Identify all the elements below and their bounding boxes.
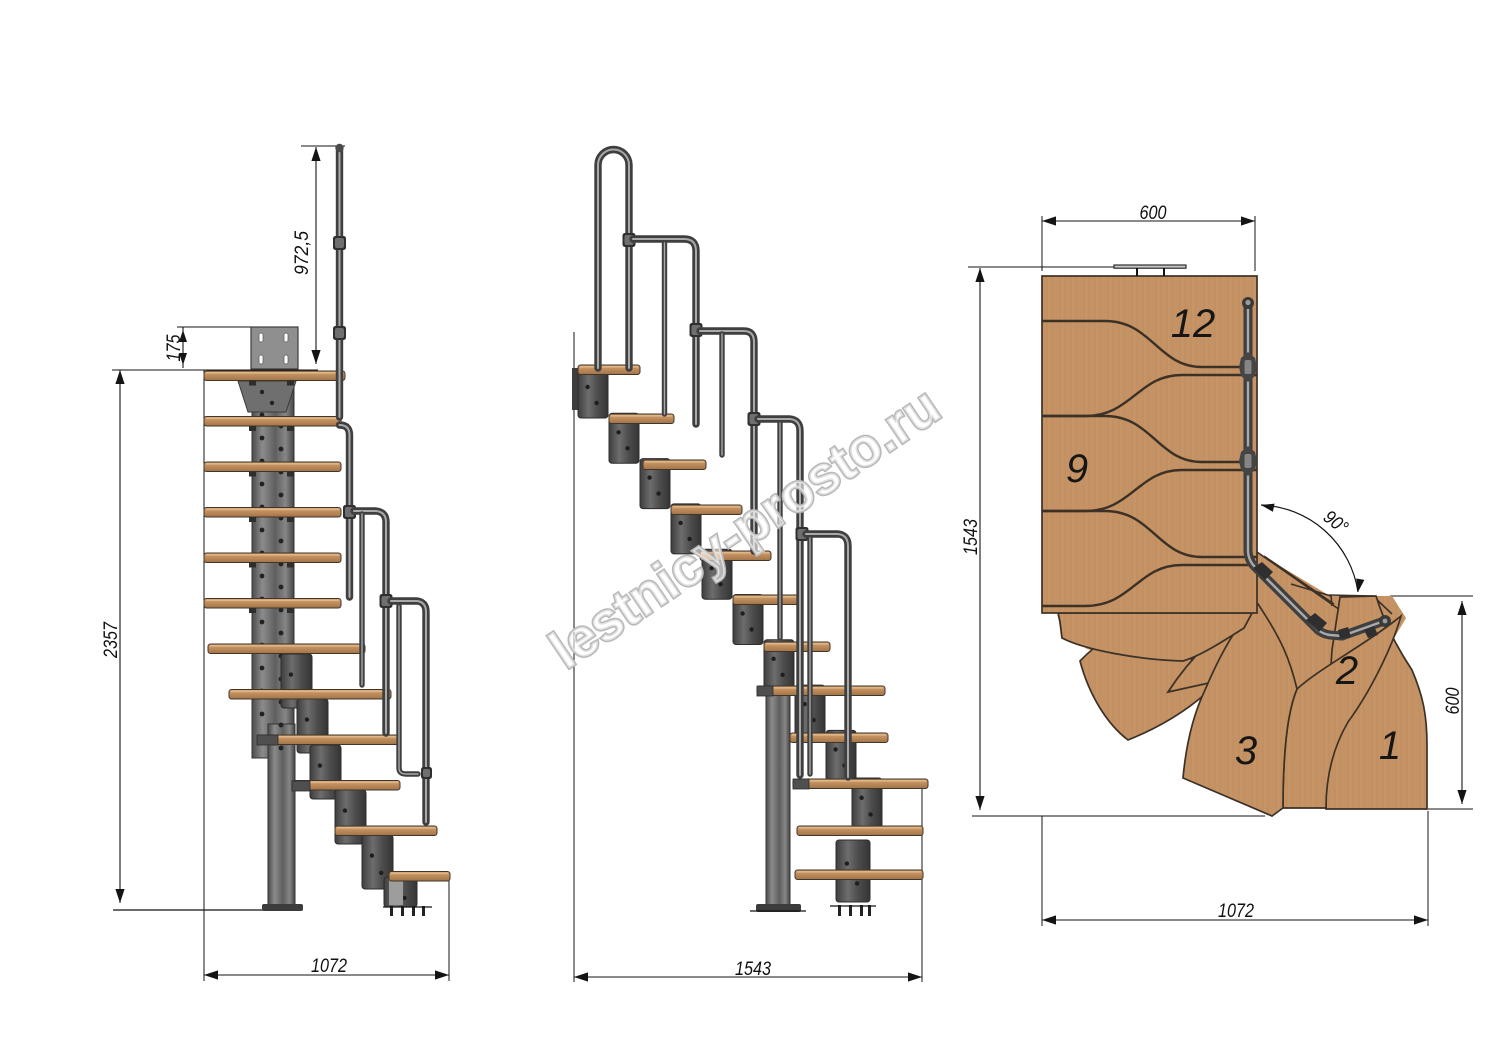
- svg-text:3: 3: [1235, 729, 1257, 773]
- svg-text:12: 12: [1171, 302, 1216, 346]
- svg-text:9: 9: [1066, 447, 1088, 491]
- svg-text:1543: 1543: [735, 959, 771, 980]
- svg-text:972,5: 972,5: [292, 231, 313, 275]
- svg-text:1072: 1072: [311, 956, 347, 977]
- svg-text:1543: 1543: [961, 519, 982, 555]
- svg-text:2: 2: [1335, 649, 1358, 693]
- svg-text:2357: 2357: [101, 621, 122, 659]
- svg-text:600: 600: [1443, 687, 1464, 714]
- svg-text:600: 600: [1140, 203, 1167, 224]
- svg-text:1: 1: [1379, 724, 1401, 768]
- svg-text:1072: 1072: [1218, 901, 1254, 922]
- svg-text:175: 175: [164, 334, 185, 361]
